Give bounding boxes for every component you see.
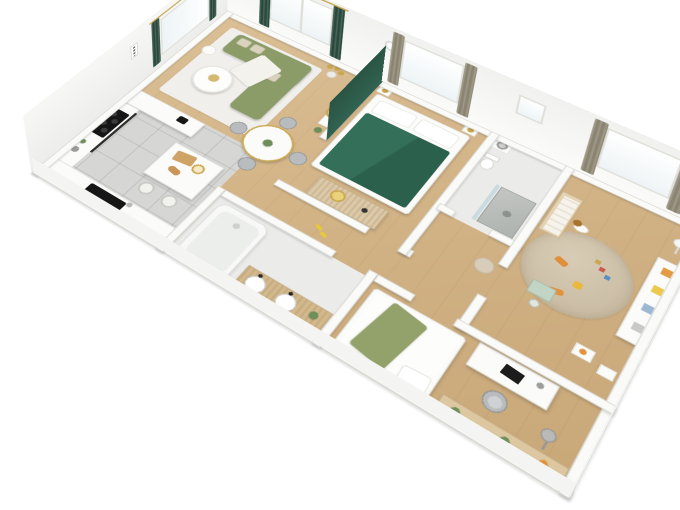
- wall-plaque: [130, 42, 138, 60]
- burner: [99, 127, 109, 134]
- shower-room-window: [515, 94, 547, 124]
- floor-plan-render: [0, 0, 680, 510]
- window-mullion: [299, 0, 304, 32]
- living-curtain-side: [209, 0, 216, 22]
- living-curtain-side: [151, 18, 161, 68]
- plaque-marks: [133, 46, 135, 57]
- perspective-scene: [0, 0, 680, 510]
- apartment-floor-plan: [32, 10, 680, 499]
